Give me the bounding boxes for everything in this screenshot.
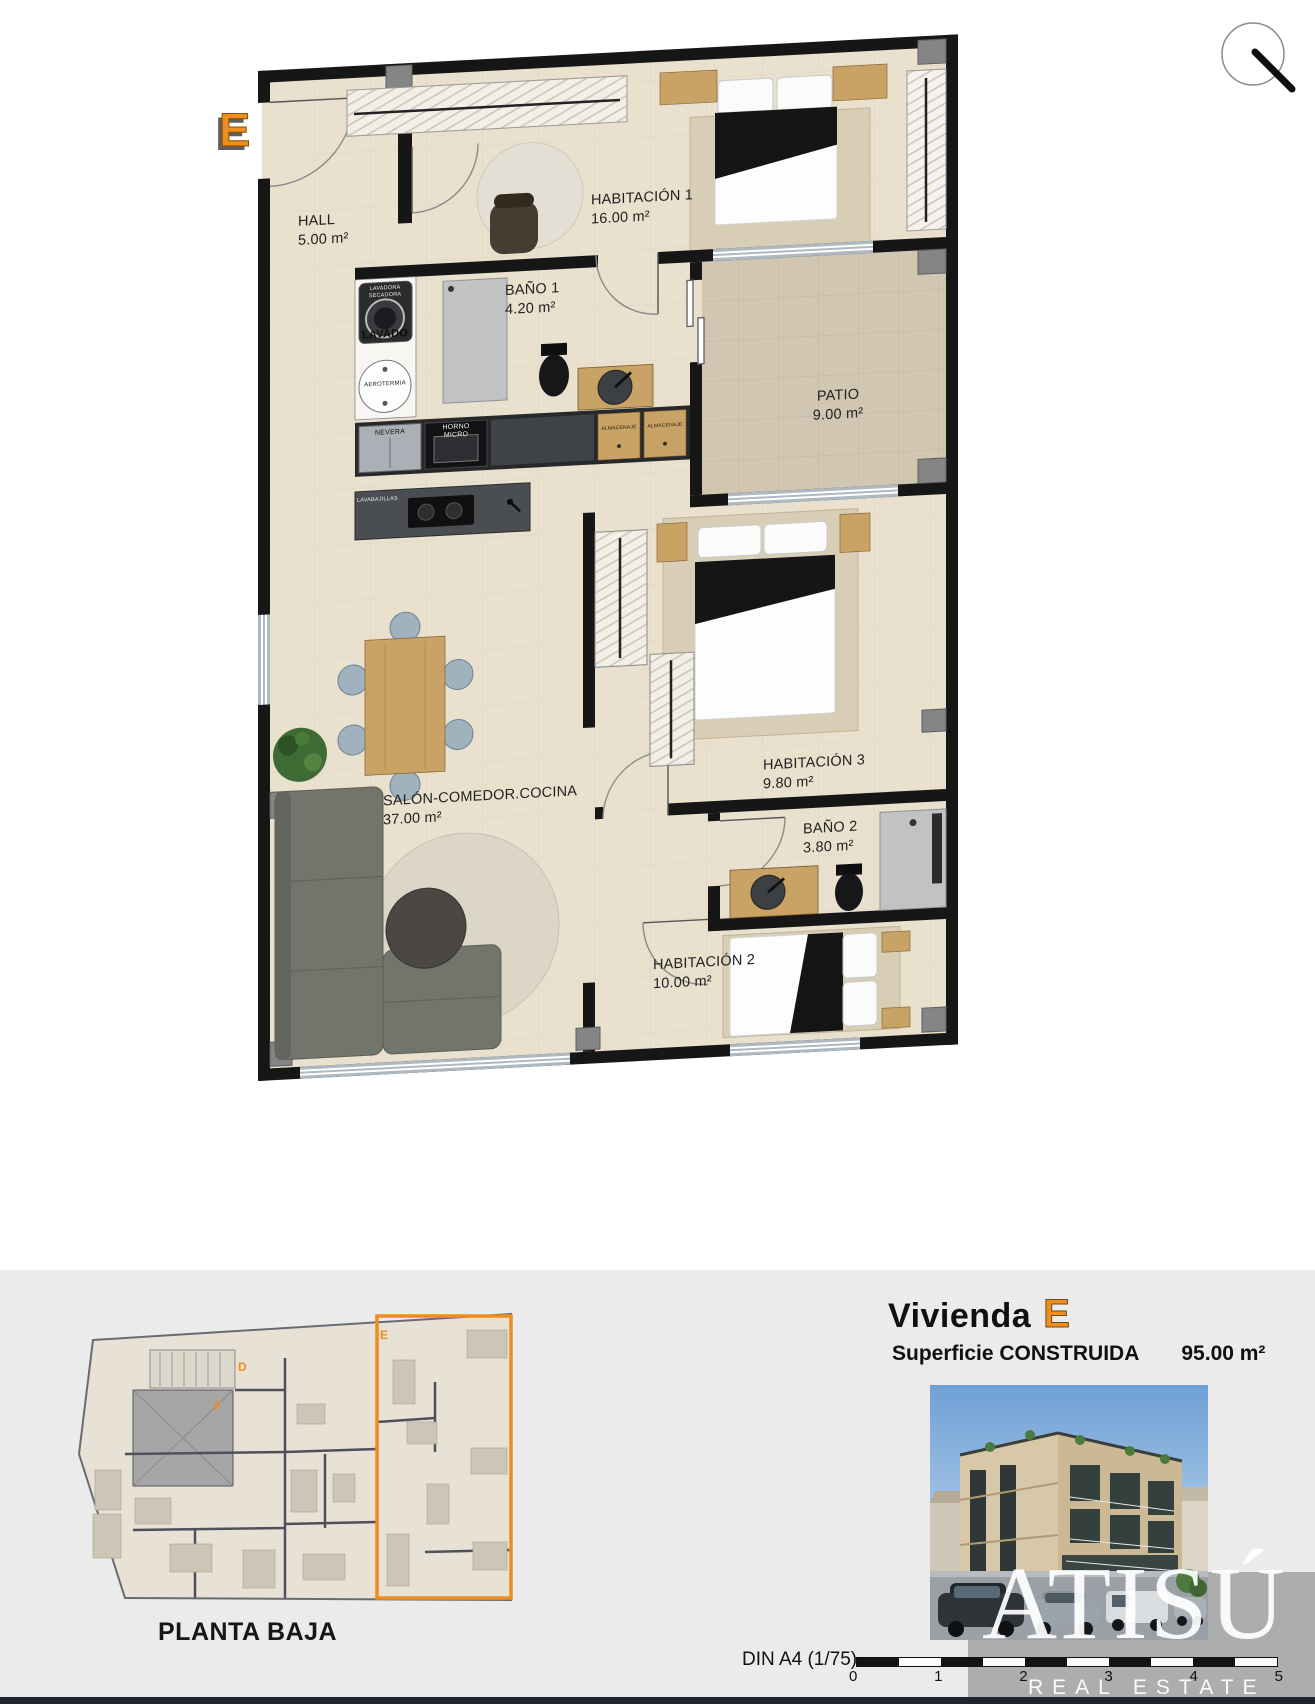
scale-tick: 3 xyxy=(1104,1668,1112,1685)
scale-tick: 2 xyxy=(1019,1668,1027,1685)
room-area: 3.80 m² xyxy=(803,836,857,858)
plan-sheet: E xyxy=(0,0,1315,1704)
info-panel: E D F PLANTA BAJA ViviendaE Superficie C… xyxy=(0,1270,1315,1697)
scale-tick: 5 xyxy=(1275,1668,1283,1685)
room-label-bedroom1: HABITACIÓN 1 16.00 m² xyxy=(591,186,693,229)
built-surface-label: Superficie CONSTRUIDA xyxy=(892,1342,1139,1365)
scale-label: DIN A4 (1/75) xyxy=(742,1649,857,1671)
room-area: 4.20 m² xyxy=(505,298,559,320)
room-label-bathroom2: BAÑO 2 3.80 m² xyxy=(803,818,857,859)
unit-title-letter: E xyxy=(1043,1292,1070,1336)
room-label-hall: HALL 5.00 m² xyxy=(298,210,349,250)
north-arrow-icon xyxy=(1213,16,1305,102)
built-surface-value: 95.00 m² xyxy=(1181,1342,1265,1365)
scale-tick: 0 xyxy=(849,1668,857,1685)
overview-unit-f: F xyxy=(214,1399,221,1413)
overview-plan: E D F xyxy=(75,1302,545,1612)
floor-plan-drawing xyxy=(258,8,958,1085)
scale-bar xyxy=(856,1657,1278,1667)
oven-micro-labels: HORNO MICRO xyxy=(425,422,487,442)
unit-title: ViviendaE xyxy=(888,1292,1070,1337)
room-label-bedroom2: HABITACIÓN 2 10.00 m² xyxy=(653,951,755,994)
unit-title-prefix: Vivienda xyxy=(888,1297,1031,1335)
overview-unit-e: E xyxy=(380,1328,388,1342)
room-area: 5.00 m² xyxy=(298,229,349,250)
watermark-brand: ATISÚ xyxy=(982,1552,1287,1656)
bottom-border xyxy=(0,1697,1315,1704)
overview-unit-d: D xyxy=(238,1360,247,1374)
scale-tick: 4 xyxy=(1190,1668,1198,1685)
scale-tick: 1 xyxy=(934,1668,942,1685)
kitchen-island xyxy=(355,483,530,540)
floor-caption: PLANTA BAJA xyxy=(158,1618,337,1647)
room-label-bedroom3: HABITACIÓN 3 9.80 m² xyxy=(763,751,865,794)
unit-badge: E xyxy=(219,102,250,157)
built-surface: Superficie CONSTRUIDA95.00 m² xyxy=(892,1342,1265,1366)
room-label-bathroom1: BAÑO 1 4.20 m² xyxy=(505,279,559,320)
scale-ticks: 0 1 2 3 4 5 xyxy=(849,1668,1283,1685)
overview-plan-drawing xyxy=(75,1302,545,1612)
main-floor-plan: HALL 5.00 m² HABITACIÓN 1 16.00 m² BAÑO … xyxy=(258,8,958,1085)
room-label-patio: PATIO 9.00 m² xyxy=(788,384,888,427)
